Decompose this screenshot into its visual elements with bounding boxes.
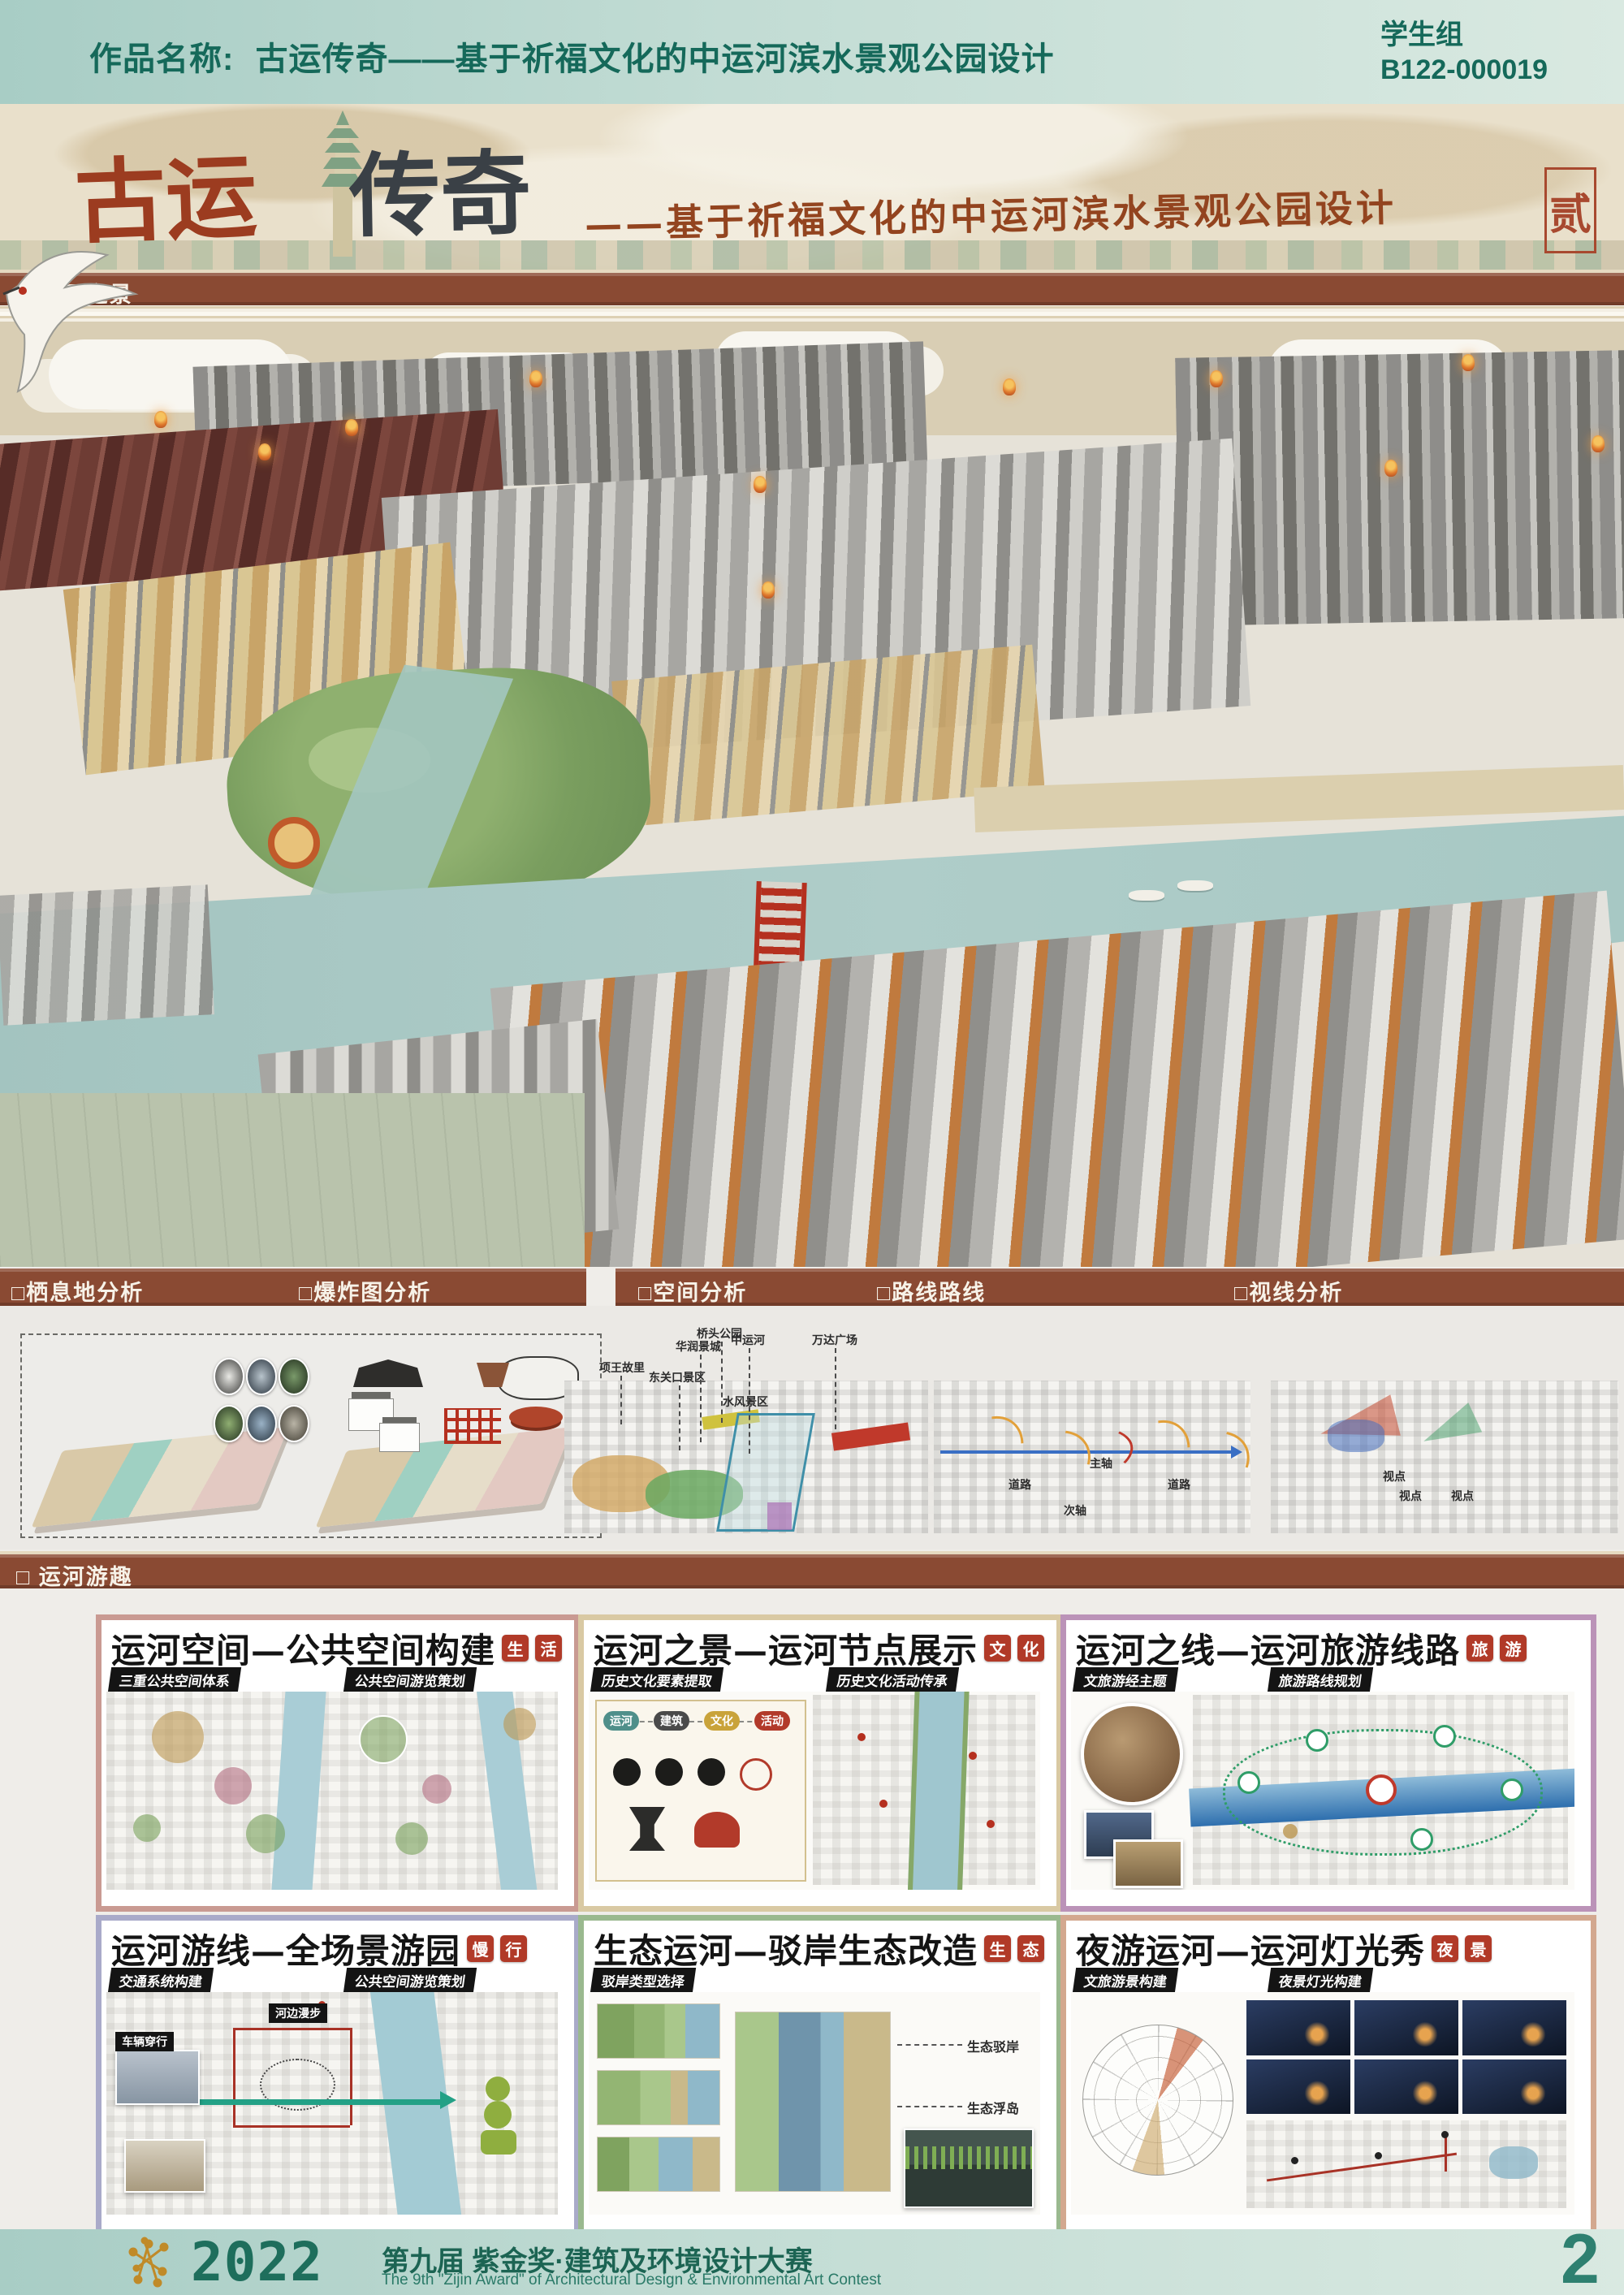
light-route xyxy=(1445,2134,1447,2171)
route-node-main xyxy=(1366,1774,1397,1805)
footer-band: 2022 第九届 紫金奖·建筑及环境设计大赛 The 9th "Zijin Aw… xyxy=(0,2229,1624,2295)
sky-lantern xyxy=(762,581,775,599)
embankment-section xyxy=(597,2070,720,2125)
flat-green-fields xyxy=(0,1093,585,1267)
overlay-red xyxy=(831,1422,910,1450)
space-bubble-pink xyxy=(214,1767,252,1804)
panel-seal: 行 xyxy=(500,1935,527,1962)
analysis-sight-title: □视线分析 xyxy=(1234,1275,1343,1307)
legend-chip-canal: 运河 xyxy=(603,1711,639,1731)
habitat-map-sheet xyxy=(32,1427,289,1528)
sky-lantern xyxy=(529,370,542,387)
panel-title: 运河空间—公共空间构建 xyxy=(111,1623,495,1673)
goblet-icon-dark xyxy=(629,1807,665,1851)
person-figure xyxy=(486,2077,510,2101)
panel-tour-routes: 运河之线—运河旅游线路 旅 游 文旅游经主题 旅游路线规划 xyxy=(1060,1614,1596,1912)
map-label: 中运河 xyxy=(731,1332,765,1348)
light-node xyxy=(1291,2157,1298,2164)
panel-body: 运河 建筑 文化 活动 xyxy=(589,1692,1040,1890)
leader-line xyxy=(835,1348,836,1429)
panel-tag: 文旅游景构建 xyxy=(1073,1968,1178,1993)
analysis-space-title: □空间分析 xyxy=(638,1275,747,1307)
panel-title: 运河之线—运河旅游线路 xyxy=(1076,1623,1460,1673)
photo-caption: 车辆穿行 xyxy=(115,2032,174,2051)
panel-tag: 三重公共空间体系 xyxy=(108,1667,241,1692)
map-label: 万达广场 xyxy=(812,1332,857,1348)
night-photo xyxy=(1246,2000,1350,2055)
space-bubble-tan xyxy=(503,1708,536,1740)
panel-title: 夜游运河—运河灯光秀 xyxy=(1076,1924,1425,1973)
legend-chip-culture: 文化 xyxy=(704,1711,740,1731)
light-node xyxy=(1441,2131,1449,2138)
analysis-strip: 项王故里 东关口景区 华润景城 桥头公园 中运河 万达广场 水风景区 道路 主轴… xyxy=(0,1306,1624,1549)
sky-lantern xyxy=(1462,354,1475,371)
panel-seal: 旅 xyxy=(1466,1635,1493,1662)
scene-section-bar: □ 运河之景 xyxy=(0,273,1624,305)
panel-title-row: 运河之线—运河旅游线路 旅 游 xyxy=(1076,1623,1527,1673)
bird-photo xyxy=(246,1405,277,1442)
view-cone-green xyxy=(1417,1402,1482,1456)
analysis-habitat-title: □栖息地分析 xyxy=(11,1275,144,1307)
night-photo xyxy=(1246,2059,1350,2115)
route-node xyxy=(1237,1771,1260,1794)
embankment-section xyxy=(597,2003,720,2059)
poster: 作品名称: 古运传奇——基于祈福文化的中运河滨水景观公园设计 学生组 B122-… xyxy=(0,0,1624,2295)
heritage-photo-round xyxy=(1081,1703,1183,1805)
river xyxy=(907,1692,969,1890)
house-icon xyxy=(379,1423,420,1452)
fun-section-title: □ 运河游趣 xyxy=(16,1559,133,1591)
sky-lantern xyxy=(258,443,271,460)
space-bubble-green xyxy=(133,1814,161,1842)
night-photo xyxy=(1354,2000,1458,2055)
work-title: 作品名称: 古运传奇——基于祈福文化的中运河滨水景观公园设计 xyxy=(89,32,1054,80)
node-dot xyxy=(879,1800,888,1808)
tour-route-red xyxy=(233,2028,235,2126)
work-title-text: 古运传奇——基于祈福文化的中运河滨水景观公园设计 xyxy=(255,41,1054,77)
legend-chip-architecture: 建筑 xyxy=(654,1711,689,1731)
green-arrow-shaft xyxy=(188,2099,440,2105)
photo xyxy=(124,2139,205,2193)
map-label: 道路 xyxy=(1168,1476,1190,1493)
boat xyxy=(1129,890,1164,901)
analysis-bar-right: □空间分析 □路线路线 □视线分析 xyxy=(615,1269,1624,1306)
map-label: 项王故里 xyxy=(599,1359,645,1376)
brown-disc-icon xyxy=(509,1407,563,1428)
panel-title: 运河之景—运河节点展示 xyxy=(594,1623,978,1673)
water-blob xyxy=(1489,2146,1538,2179)
eco-island-photo xyxy=(904,2129,1034,2208)
route-map xyxy=(1193,1695,1568,1885)
sky-lantern xyxy=(1384,460,1397,477)
space-bubble-tan xyxy=(152,1711,204,1763)
tour-route-red xyxy=(350,2028,352,2126)
element-icon-ring xyxy=(740,1758,772,1791)
panel-map: 车辆穿行 河边漫步 xyxy=(106,1992,558,2215)
scene-bar-stripes xyxy=(0,305,1624,322)
route-node xyxy=(1433,1725,1456,1748)
leader-line xyxy=(721,1342,723,1423)
photo xyxy=(1113,1839,1183,1888)
panel-tag: 驳岸类型选择 xyxy=(590,1968,696,1993)
panel-tag: 公共空间游览策划 xyxy=(343,1968,477,1993)
analysis-exploded-title: □爆炸图分析 xyxy=(299,1275,431,1307)
red-frame-structure-icon xyxy=(444,1408,501,1444)
sky-lantern xyxy=(345,419,358,436)
panel-seal: 态 xyxy=(1017,1935,1044,1962)
map-label: 主轴 xyxy=(1090,1455,1112,1472)
element-icon xyxy=(613,1758,641,1786)
panel-body xyxy=(1071,1992,1574,2215)
panel-tag: 文旅游经主题 xyxy=(1073,1667,1178,1692)
route-node xyxy=(1501,1779,1523,1801)
banner-seal: 贰 xyxy=(1544,167,1596,253)
eco-label: 生态驳岸 xyxy=(967,2036,1019,2055)
route-node-tan xyxy=(1283,1824,1298,1839)
space-bubble-pink xyxy=(422,1774,451,1804)
panel-title-row: 夜游运河—运河灯光秀 夜 景 xyxy=(1076,1924,1492,1973)
crane-bird-illustration xyxy=(2,237,148,395)
panel-seal: 生 xyxy=(984,1935,1011,1962)
page-number: 2 xyxy=(1561,2219,1600,2295)
panel-title-row: 生态运河—驳岸生态改造 生 态 xyxy=(594,1924,1044,1973)
main-render xyxy=(0,322,1624,1267)
night-photo xyxy=(1462,2000,1566,2055)
embankment-section-large xyxy=(735,2012,891,2192)
panel-seal: 文 xyxy=(984,1635,1011,1662)
map-label: 视点 xyxy=(1451,1488,1474,1504)
analysis-bar-left: □栖息地分析 □爆炸图分析 xyxy=(0,1269,586,1306)
park-plaza-ring xyxy=(268,817,320,869)
overlay-purple xyxy=(767,1502,792,1530)
photo xyxy=(115,2050,200,2105)
panel-title-row: 运河之景—运河节点展示 文 化 xyxy=(594,1623,1044,1673)
panel-seal: 生 xyxy=(502,1635,529,1662)
map-note: 河边漫步 xyxy=(269,2003,327,2023)
element-icon xyxy=(655,1758,683,1786)
panel-tag: 历史文化活动传承 xyxy=(826,1667,959,1692)
route-analysis-map: 道路 主轴 次轴 道路 xyxy=(934,1381,1250,1533)
map-label: 视点 xyxy=(1383,1468,1406,1485)
green-arrow-head xyxy=(440,2091,456,2109)
panel-full-scene-tour: 运河游线—全场景游园 慢 行 交通系统构建 公共空间游览策划 车辆穿行 河边漫步 xyxy=(96,1915,580,2237)
panel-seal: 夜 xyxy=(1432,1935,1458,1962)
panel-map xyxy=(106,1692,558,1890)
panel-body: 生态驳岸 生态浮岛 xyxy=(589,1992,1040,2215)
leader-line xyxy=(679,1385,680,1450)
legend-chip-activity: 活动 xyxy=(754,1711,790,1731)
river xyxy=(270,1692,326,1890)
panel-tag: 夜景灯光构建 xyxy=(1268,1968,1373,1993)
habitat-exploded-box xyxy=(20,1333,602,1538)
top-header-band: 作品名称: 古运传奇——基于祈福文化的中运河滨水景观公园设计 学生组 B122-… xyxy=(0,0,1624,104)
route-node xyxy=(1410,1828,1433,1851)
panel-public-space: 运河空间—公共空间构建 生 活 三重公共空间体系 公共空间游览策划 xyxy=(96,1614,580,1912)
space-bubble-green xyxy=(359,1715,408,1764)
night-photo xyxy=(1354,2059,1458,2115)
panel-seal: 景 xyxy=(1465,1935,1492,1962)
map-label: 道路 xyxy=(1009,1476,1031,1493)
entry-id: B122-000019 xyxy=(1380,53,1548,88)
temple-roof-icon xyxy=(353,1359,423,1387)
boat xyxy=(1177,880,1213,891)
element-icon xyxy=(698,1758,725,1786)
panel-seal: 化 xyxy=(1017,1635,1044,1662)
panel-body xyxy=(1071,1692,1574,1890)
light-rose-diagram xyxy=(1082,2025,1233,2176)
light-node xyxy=(1375,2152,1382,2159)
overlay-blue xyxy=(1328,1420,1384,1452)
panel-title-row: 运河游线—全场景游园 慢 行 xyxy=(111,1924,527,1973)
sky-lantern xyxy=(154,411,167,428)
night-route-map xyxy=(1246,2120,1566,2208)
node-dot xyxy=(969,1752,977,1760)
city-blocks-west-bank xyxy=(0,884,214,1025)
sky-lantern xyxy=(1003,378,1016,395)
person-figure-body xyxy=(481,2130,516,2155)
overlay-river-outline xyxy=(716,1413,815,1532)
night-photo-grid xyxy=(1246,2000,1566,2114)
panel-seal: 慢 xyxy=(467,1935,494,1962)
bird-photo xyxy=(214,1405,244,1442)
night-photo xyxy=(1462,2059,1566,2115)
footer-contest-subtitle: The 9th "Zijin Award" of Architectural D… xyxy=(382,2271,881,2289)
footer-year: 2022 xyxy=(191,2231,323,2293)
sky-lantern xyxy=(1592,435,1605,452)
panel-seal: 活 xyxy=(535,1635,562,1662)
panel-node-display: 运河之景—运河节点展示 文 化 历史文化要素提取 历史文化活动传承 运河 建筑 … xyxy=(578,1614,1062,1912)
panel-tag: 旅游路线规划 xyxy=(1268,1667,1373,1692)
map-label: 水风景区 xyxy=(723,1394,768,1410)
panel-tag: 交通系统构建 xyxy=(108,1968,214,1993)
bird-photo xyxy=(246,1358,277,1395)
panel-tag: 公共空间游览策划 xyxy=(343,1667,477,1692)
leader-line xyxy=(620,1376,622,1424)
fun-section-bar: □ 运河游趣 xyxy=(0,1554,1624,1588)
map-label: 东关口景区 xyxy=(649,1369,706,1385)
work-title-label: 作品名称: xyxy=(89,41,234,77)
map-label: 次轴 xyxy=(1064,1502,1086,1519)
analysis-route-title: □路线路线 xyxy=(877,1275,986,1307)
zijin-award-logo xyxy=(122,2236,175,2288)
panel-title: 运河游线—全场景游园 xyxy=(111,1924,460,1973)
embankment-section xyxy=(597,2137,720,2192)
bird-photo xyxy=(279,1405,309,1442)
tour-route-red xyxy=(233,2125,351,2128)
eco-label: 生态浮岛 xyxy=(967,2098,1019,2117)
route-node xyxy=(1306,1729,1328,1752)
culture-legend-box: 运河 建筑 文化 活动 xyxy=(595,1700,806,1882)
panel-title: 生态运河—驳岸生态改造 xyxy=(594,1924,978,1973)
node-dot xyxy=(857,1733,866,1741)
panel-night-lights: 夜游运河—运河灯光秀 夜 景 文旅游景构建 夜景灯光构建 xyxy=(1060,1915,1596,2237)
bird-photo xyxy=(279,1358,309,1395)
red-vessel-icon xyxy=(694,1812,740,1848)
panel-eco-embankment: 生态运河—驳岸生态改造 生 态 驳岸类型选择 生态驳岸 生态浮岛 xyxy=(578,1915,1062,2237)
map-label: 视点 xyxy=(1399,1488,1422,1504)
node-dot xyxy=(987,1820,995,1828)
panel-tag: 历史文化要素提取 xyxy=(590,1667,723,1692)
node-map xyxy=(813,1695,1035,1885)
sight-analysis-map: 视点 视点 视点 xyxy=(1271,1381,1618,1533)
banner-title-dark: 传奇 xyxy=(348,120,533,255)
entry-info: 学生组 B122-000019 xyxy=(1380,18,1548,87)
bird-photo xyxy=(214,1358,244,1395)
sky-lantern xyxy=(1210,370,1223,387)
panel-title-row: 运河空间—公共空间构建 生 活 xyxy=(111,1623,562,1673)
tour-route-red xyxy=(233,2028,351,2030)
entry-group: 学生组 xyxy=(1380,18,1548,53)
banner: 古运 传奇 ——基于祈福文化的中运河滨水景观公园设计 贰 xyxy=(0,104,1624,270)
sky-lantern xyxy=(754,476,767,493)
space-bubble-green xyxy=(395,1822,428,1855)
leader-dashed xyxy=(897,2106,962,2107)
leader-dashed xyxy=(897,2044,962,2046)
leader-line xyxy=(700,1355,702,1442)
city-towers-east xyxy=(1175,350,1624,626)
panel-seal: 游 xyxy=(1500,1635,1527,1662)
